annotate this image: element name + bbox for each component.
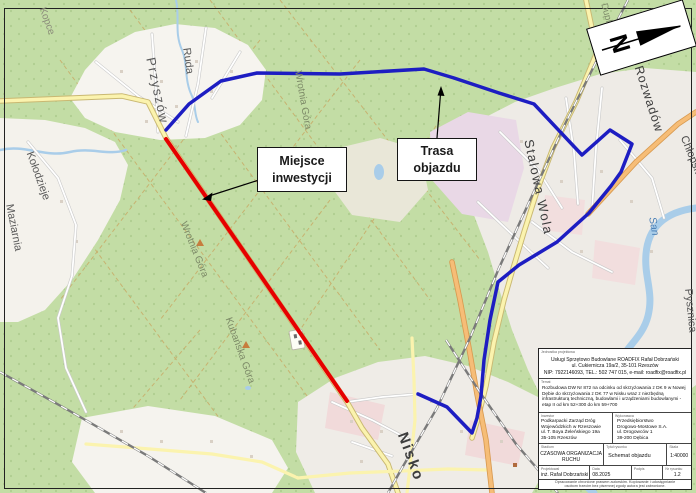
- detour-scheme-drawing: Przyszów Ruda Kopce Kołodzieje Maziarnia…: [0, 0, 696, 493]
- title-block-stage-row: Stadium CZASOWA ORGANIZACJA RUCHU Tytuł …: [539, 444, 691, 466]
- drawing-no-cell: Nr rysunku 1.2: [663, 466, 691, 479]
- designer-unit-label: Jednostka projektowa: [541, 350, 575, 354]
- title-block-parties: Inwestor Podkarpacki Zarząd Dróg Wojewód…: [539, 413, 691, 444]
- contractor-line: 39-200 Dębica: [617, 436, 689, 442]
- subject-label: Temat: [541, 380, 551, 384]
- subject-text: Rozbudowa DW Nr 872 na odcinku od skrzyż…: [539, 379, 691, 408]
- signature-cell: Podpis: [632, 466, 664, 479]
- drawing-title-cell: Tytuł rysunku Schemat objazdu: [604, 444, 667, 465]
- scale-cell: Skala 1:40000: [667, 444, 691, 465]
- detour-callout-label: Trasa objazdu: [398, 143, 476, 176]
- signature-label: Podpis: [634, 467, 645, 471]
- title-block: Jednostka projektowa Usługi Sprzętowo Bu…: [538, 348, 692, 490]
- investor-label: Inwestor: [541, 414, 554, 418]
- detour-callout: Trasa objazdu: [397, 138, 477, 181]
- residential-patch: [592, 240, 640, 285]
- designed-by-cell: Projektował inż. Rafał Dobrzański: [539, 466, 590, 479]
- drawing-title-label: Tytuł rysunku: [606, 445, 627, 449]
- pond: [374, 164, 384, 180]
- title-block-designer-unit: Jednostka projektowa Usługi Sprzętowo Bu…: [539, 349, 691, 379]
- contractor-label: Wykonawca: [615, 414, 634, 418]
- drawing-no-label: Nr rysunku: [665, 467, 682, 471]
- investor-line: ul. T. Boya Żeleńskiego 19a: [541, 430, 610, 436]
- date-cell: Data 08.2025: [590, 466, 631, 479]
- designed-by-label: Projektował: [541, 467, 559, 471]
- date-label: Data: [592, 467, 599, 471]
- title-block-signature-row: Projektował inż. Rafał Dobrzański Data 0…: [539, 466, 691, 480]
- title-block-subject: Temat Rozbudowa DW Nr 872 na odcinku od …: [539, 379, 691, 413]
- copyright-note: Opracowanie chronione prawem autorskim. …: [539, 480, 691, 488]
- stage-cell: Stadium CZASOWA ORGANIZACJA RUCHU: [539, 444, 604, 465]
- investment-callout-label: Miejsce inwestycji: [258, 153, 346, 186]
- investor-cell: Inwestor Podkarpacki Zarząd Dróg Wojewód…: [539, 413, 613, 443]
- stage-label: Stadium: [541, 445, 554, 449]
- investment-callout: Miejsce inwestycji: [257, 147, 347, 192]
- scale-label: Skala: [669, 445, 678, 449]
- pond-small: [245, 386, 251, 390]
- investor-line: 35-105 Rzeszów: [541, 436, 610, 442]
- designer-unit-contact: NIP: 7922146093, TEL.: 502 747 015, e-ma…: [544, 370, 686, 376]
- contractor-cell: Wykonawca Przedsiębiorstwo Drogowo-Mosto…: [613, 413, 691, 443]
- title-block-note-row: Opracowanie chronione prawem autorskim. …: [539, 480, 691, 489]
